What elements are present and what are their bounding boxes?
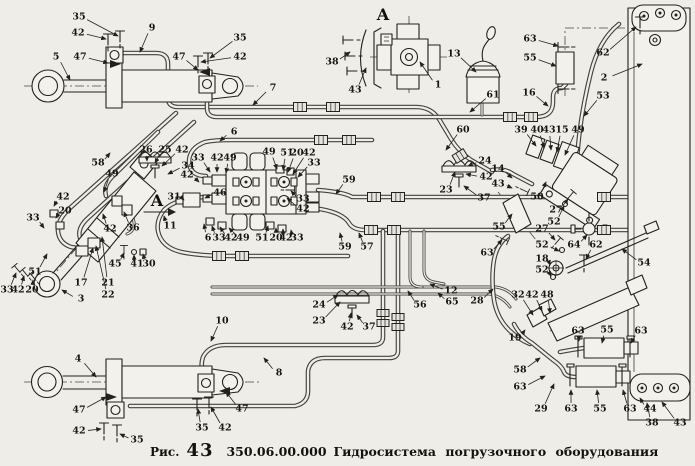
leader-line — [450, 172, 455, 185]
leader-line — [550, 247, 559, 251]
view-letter-label: А — [150, 191, 163, 210]
part-number-label: 5 — [53, 52, 60, 63]
part-number-label: 42 — [72, 426, 85, 437]
part-number-label: 9 — [149, 23, 156, 34]
part-number-label: 28 — [470, 296, 484, 307]
part-number-label: 52 — [535, 240, 548, 251]
part-number-label: 35 — [130, 435, 143, 446]
part-number-label: 42 — [233, 52, 246, 63]
part-number-label: 49 — [262, 147, 276, 158]
hose-coupling — [598, 193, 611, 202]
part-number-label: 7 — [270, 83, 277, 94]
part-number-label: 36 — [126, 223, 140, 234]
view-letter-label: А — [376, 5, 389, 24]
part-number-label: 16 — [522, 88, 536, 99]
part-number-label: 55 — [523, 53, 536, 64]
part-number-label: 37 — [362, 322, 375, 333]
part-number-label: 42 — [218, 423, 231, 434]
part-number-label: 32 — [511, 290, 524, 301]
part-number-label: 33 — [26, 213, 39, 224]
part-number-label: 52 — [547, 217, 560, 228]
part-number-label: 17 — [74, 278, 87, 289]
part-number-label: 64 — [567, 240, 581, 251]
leader-line — [105, 153, 110, 159]
leader-line — [195, 178, 199, 182]
leader-line — [545, 384, 554, 404]
part-number-label: 42 — [56, 192, 69, 203]
return-tube — [556, 52, 574, 84]
part-number-label: 63 — [634, 326, 647, 337]
leader-line — [464, 186, 476, 195]
part-number-label: 63 — [513, 382, 526, 393]
part-number-label: 20 — [25, 285, 39, 296]
part-number-label: 46 — [213, 188, 227, 199]
control-valve-block — [176, 153, 319, 232]
leader-line — [84, 363, 96, 377]
bolt-icon — [100, 423, 109, 440]
part-number-label: 43 — [542, 125, 555, 136]
leader-line — [253, 92, 266, 105]
part-number-label: 3 — [78, 294, 85, 305]
hose-coupling — [388, 226, 401, 235]
leader-line — [198, 409, 200, 422]
part-number-label: 10 — [215, 316, 229, 327]
leader-line — [211, 326, 218, 341]
bolt-icon — [514, 183, 529, 195]
part-number-label: 63 — [564, 404, 577, 415]
part-number-label: 35 — [233, 33, 246, 44]
part-number-label: 42 — [103, 224, 116, 235]
hose-coupling — [504, 113, 517, 122]
part-number-label: 45 — [108, 259, 121, 270]
part-number-label: 35 — [72, 12, 85, 23]
part-number-label: 26 — [139, 145, 153, 156]
part-number-label: 54 — [637, 258, 651, 269]
part-number-label: 13 — [447, 49, 460, 60]
part-number-label: 33 — [191, 153, 204, 164]
part-number-label: 2 — [601, 73, 608, 84]
part-number-label: 33 — [290, 233, 303, 244]
part-number-label: 23 — [312, 316, 325, 327]
leader-line — [88, 429, 101, 430]
hose-coupling — [525, 113, 538, 122]
hose-coupling — [392, 193, 405, 202]
pump-assembly — [442, 131, 630, 233]
hose-coupling — [294, 103, 307, 112]
leader-line — [597, 390, 599, 403]
part-number-label: 42 — [71, 28, 84, 39]
leader-line — [359, 233, 363, 242]
part-number-label: 51 — [255, 233, 268, 244]
leader-line — [186, 60, 198, 70]
part-number-label: 11 — [163, 221, 176, 232]
bolt-icon — [116, 31, 125, 48]
part-number-label: 63 — [571, 326, 584, 337]
hose-coupling — [392, 314, 404, 321]
part-number-label: 47 — [73, 52, 86, 63]
part-number-label: 15 — [555, 125, 568, 136]
hose-coupling — [365, 226, 378, 235]
part-number-label: 35 — [195, 423, 208, 434]
leader-line — [87, 20, 118, 36]
part-number-label: 30 — [142, 259, 156, 270]
part-number-label: 42 — [180, 170, 193, 181]
bolt-icon — [113, 425, 122, 442]
part-number-label: 43 — [673, 418, 686, 429]
part-number-label: 59 — [338, 242, 352, 253]
hose-coupling — [343, 136, 356, 145]
leader-line — [204, 163, 210, 172]
part-number-label: 62 — [596, 48, 609, 59]
leader-line — [40, 254, 47, 267]
part-number-label: 62 — [589, 240, 602, 251]
part-number-label: 56 — [413, 300, 427, 311]
leader-line — [507, 186, 512, 188]
caption-doc-code: 350.06.00.000 — [226, 444, 326, 459]
leader-line — [201, 58, 231, 62]
leader-line — [22, 276, 24, 284]
part-number-label: 57 — [360, 242, 373, 253]
part-number-label: 14 — [491, 164, 505, 175]
part-number-label: 6 — [205, 233, 212, 244]
part-number-label: 25 — [158, 145, 171, 156]
part-number-label: 33 — [307, 158, 320, 169]
part-number-label: 43 — [491, 179, 504, 190]
caption-fig-number: 43 — [186, 440, 213, 461]
hose-coupling — [377, 310, 389, 317]
bolt-icon — [120, 245, 127, 259]
leader-line — [87, 34, 106, 39]
leader-line — [581, 235, 587, 241]
part-number-label: 58 — [91, 158, 105, 169]
leader-line — [273, 157, 277, 169]
leader-line — [549, 273, 551, 276]
hose-coupling — [327, 103, 340, 112]
leader-line — [140, 33, 148, 52]
part-number-label: 18 — [535, 254, 549, 265]
part-number-label: 52 — [535, 265, 548, 276]
part-number-label: 44 — [643, 404, 657, 415]
part-number-label: 59 — [342, 175, 356, 186]
part-number-label: 65 — [445, 297, 458, 308]
figure-page: 3542947547354273843113635562253611660394… — [0, 0, 695, 466]
part-number-label: 47 — [172, 52, 185, 63]
part-number-label: 27 — [535, 224, 548, 235]
hose-coupling — [368, 193, 381, 202]
bolt-icon — [558, 43, 575, 52]
hydraulic-system-diagram: 3542947547354273843113635562253611660394… — [0, 0, 695, 466]
part-number-label: 4 — [75, 354, 82, 365]
part-number-label: 61 — [486, 90, 499, 101]
part-number-label: 42 — [340, 322, 353, 333]
part-number-label: 53 — [596, 91, 609, 102]
leader-line — [89, 58, 108, 63]
part-number-label: 51 — [28, 267, 41, 278]
part-number-label: 31 — [167, 192, 180, 203]
leader-line — [62, 290, 73, 296]
leader-line — [120, 434, 129, 438]
part-number-label: 24 — [478, 156, 492, 167]
part-number-label: 49 — [571, 125, 585, 136]
leader-line — [326, 302, 340, 317]
hose-coupling — [236, 252, 249, 261]
caption-fig-label: Рис. — [150, 445, 179, 459]
part-number-label: 24 — [312, 300, 326, 311]
part-number-label: 63 — [480, 248, 493, 259]
hose-coupling — [452, 149, 468, 164]
leader-line — [549, 233, 555, 240]
leader-line — [340, 233, 342, 241]
part-number-label: 22 — [101, 290, 114, 301]
leader-line — [523, 300, 533, 315]
leader-line — [466, 174, 477, 176]
part-number-label: 42 — [525, 290, 538, 301]
part-number-label: 12 — [444, 286, 457, 297]
part-number-label: 47 — [235, 404, 248, 415]
hose-coupling — [598, 226, 611, 235]
part-number-label: 29 — [534, 404, 548, 415]
part-number-label: 42 — [175, 145, 188, 156]
leader-line — [539, 40, 558, 46]
part-number-label: 47 — [72, 405, 85, 416]
view-arrowhead-icon — [168, 208, 176, 216]
part-number-label: 63 — [523, 34, 536, 45]
boom-cylinder — [32, 47, 243, 108]
figure-caption: Рис. 43 350.06.00.000 Гидросистема погру… — [150, 440, 580, 461]
part-number-label: 6 — [231, 127, 238, 138]
part-number-label: 42 — [11, 285, 24, 296]
part-number-label: 38 — [325, 57, 339, 68]
leader-line — [528, 358, 540, 367]
part-number-label: 42 — [296, 204, 309, 215]
hose-coupling — [315, 136, 328, 145]
part-number-label: 55 — [492, 222, 505, 233]
part-number-label: 38 — [645, 418, 659, 429]
part-number-label: 43 — [348, 85, 361, 96]
leader-line — [536, 96, 548, 106]
part-number-label: 37 — [477, 193, 490, 204]
part-number-label: 63 — [623, 404, 636, 415]
leader-line — [11, 273, 16, 285]
part-number-label: 49 — [223, 153, 237, 164]
leader-line — [528, 376, 545, 385]
oil-tank — [628, 5, 690, 420]
leader-line — [211, 407, 220, 423]
leader-line — [87, 397, 106, 407]
leader-line — [623, 390, 627, 403]
part-number-label: 49 — [236, 233, 250, 244]
detail-a-valve — [343, 24, 440, 89]
part-number-label: 39 — [514, 125, 528, 136]
caption-title: Гидросистема погрузочного оборудования — [334, 444, 659, 459]
hose-coupling — [377, 320, 389, 327]
part-number-label: 1 — [435, 80, 442, 91]
part-number-label: 50 — [530, 192, 544, 203]
lift-cylinder — [32, 359, 244, 418]
leader-line — [349, 313, 351, 321]
hose-coupling — [392, 324, 404, 331]
leader-line — [210, 41, 233, 58]
part-number-label: 60 — [456, 125, 470, 136]
leader-line — [264, 358, 273, 369]
part-number-label: 49 — [105, 169, 119, 180]
part-number-label: 42 — [210, 153, 223, 164]
part-number-label: 20 — [58, 206, 72, 217]
leader-line — [204, 224, 206, 232]
leader-line — [539, 60, 556, 66]
part-number-label: 8 — [276, 368, 283, 379]
leader-line — [40, 222, 44, 228]
part-number-label: 23 — [439, 185, 452, 196]
part-number-label: 19 — [508, 333, 522, 344]
part-number-label: 58 — [513, 365, 527, 376]
part-number-label: 48 — [540, 290, 554, 301]
hose-coupling — [213, 252, 226, 261]
part-number-label: 55 — [600, 325, 613, 336]
part-number-label: 55 — [593, 404, 606, 415]
leader-line — [226, 392, 236, 405]
leader-line — [168, 168, 180, 174]
